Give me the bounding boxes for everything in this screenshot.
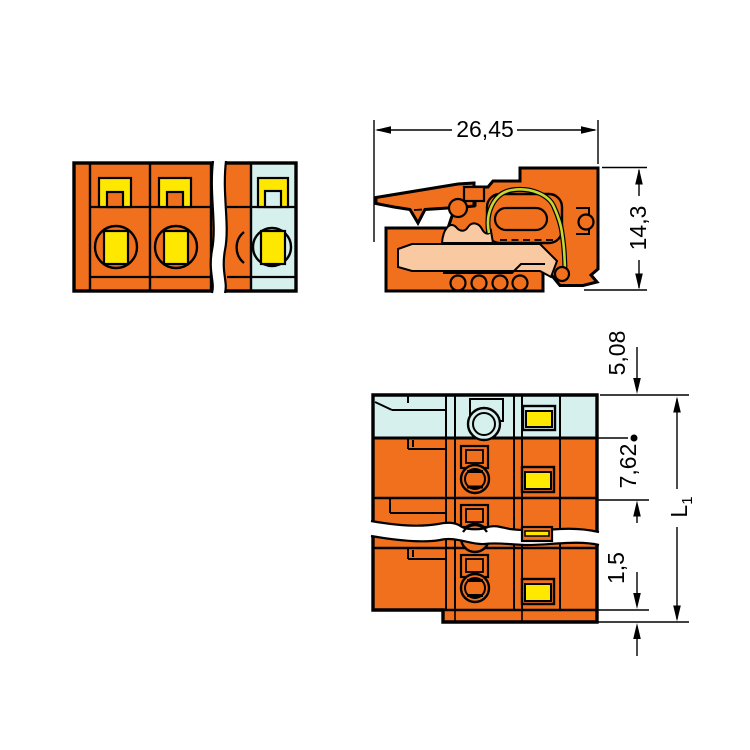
- dimension-dot: [631, 435, 638, 442]
- clamp-window: [495, 208, 547, 230]
- dimension-label-end-spacing: 5,08: [604, 331, 630, 376]
- front-view: [74, 161, 296, 293]
- top-view: 5,08 7,62 1,5 L1: [371, 331, 696, 656]
- dimension-label-total-length: L1: [666, 496, 696, 517]
- dimension-total-length: L1: [666, 397, 696, 622]
- dimension-label-height: 14,3: [625, 206, 651, 251]
- dimension-flange: 1,5: [598, 552, 689, 656]
- dimension-label-flange: 1,5: [603, 552, 629, 584]
- clamp-opening: [525, 472, 551, 489]
- connector-technical-drawing: 26,45 14,3: [0, 0, 750, 750]
- pivot-hole: [449, 199, 467, 217]
- break-line: [211, 161, 227, 293]
- dimension-label-width: 26,45: [456, 116, 514, 142]
- bottom-flange: [443, 610, 597, 622]
- drawing-sheet: 26,45 14,3: [0, 0, 750, 750]
- clamp-opening: [525, 584, 551, 601]
- dimension-pitch: 7,62: [598, 435, 649, 524]
- dimension-end-spacing: 5,08: [600, 331, 689, 395]
- side-view: 26,45 14,3: [374, 116, 651, 291]
- dimension-label-pitch: 7,62: [615, 444, 641, 489]
- clamp-opening: [526, 411, 552, 427]
